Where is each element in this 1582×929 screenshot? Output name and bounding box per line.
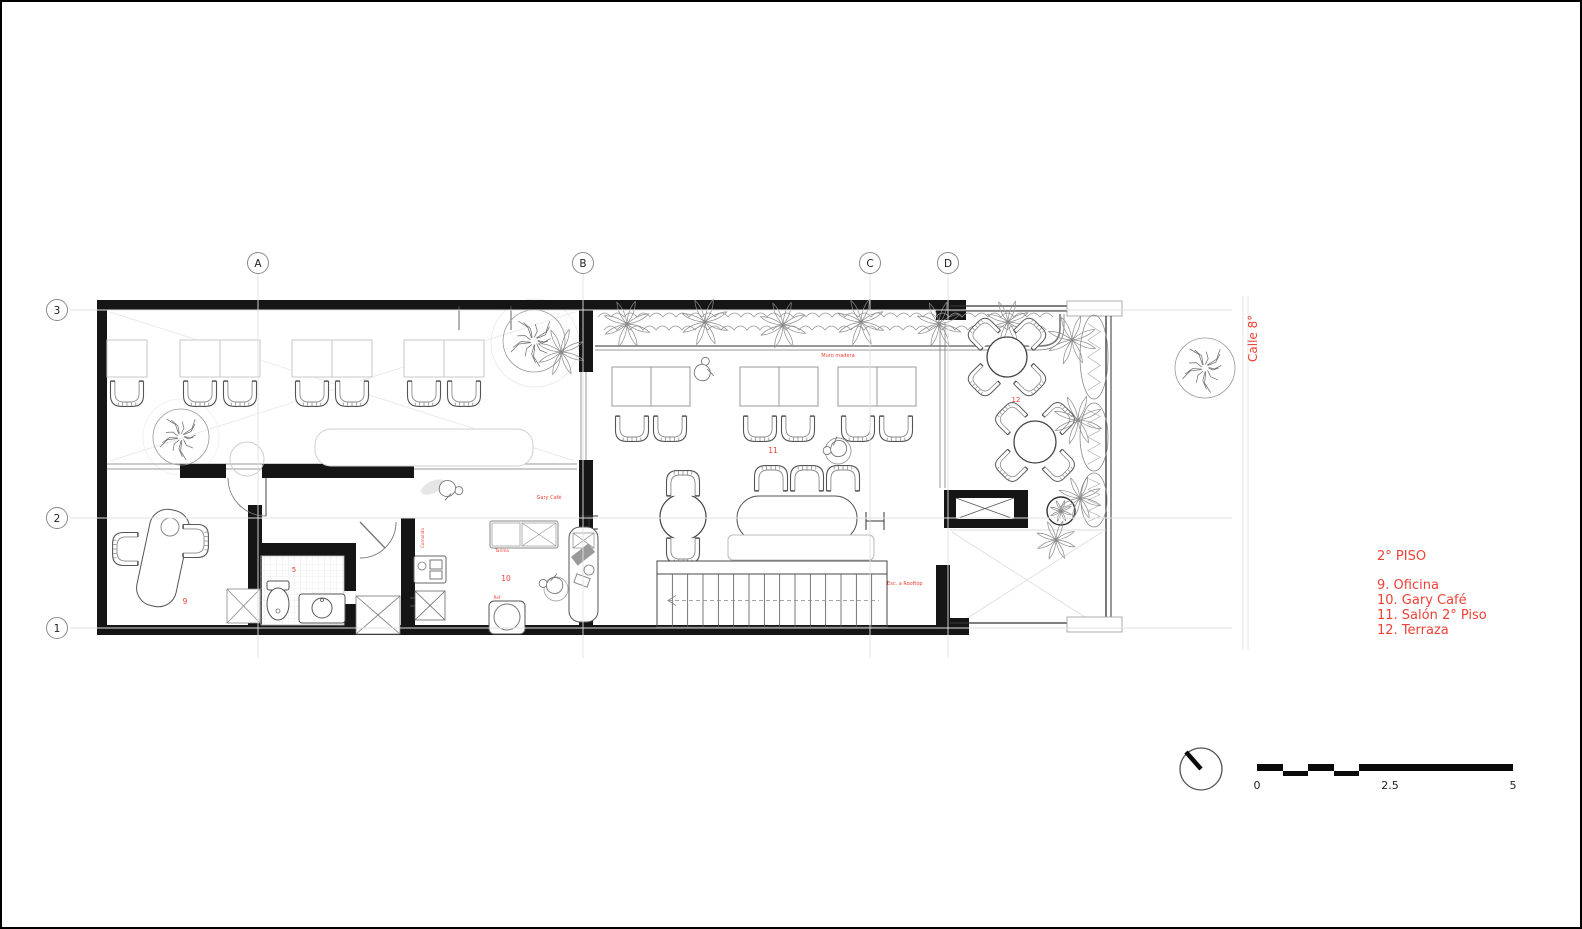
svg-text:3: 3 — [54, 305, 61, 317]
svg-text:2: 2 — [54, 513, 61, 525]
plan-rect — [612, 367, 651, 406]
person-figure — [437, 479, 464, 503]
wall — [97, 300, 107, 635]
crossed-box — [415, 591, 445, 620]
chair — [408, 381, 441, 406]
wall — [180, 464, 226, 478]
crossed-box — [227, 589, 260, 623]
chair — [616, 416, 649, 441]
tree — [153, 409, 209, 465]
plan-label: Muro madera — [821, 353, 854, 359]
crossed-box — [573, 533, 594, 548]
chair — [296, 381, 329, 406]
chair — [827, 466, 860, 491]
plan-label: 5 — [292, 566, 296, 574]
plan-rect — [737, 496, 857, 541]
floor-plan-canvas: ABCD32195101112Gary CaféMuro maderaEsc. … — [0, 0, 1582, 929]
legend-title: 2° PISO — [1377, 549, 1487, 564]
scale-label: 2.5 — [1381, 779, 1399, 792]
plan-label: Esc. a Rooftop — [887, 581, 923, 587]
legend-item-terraza: 12. Terraza — [1377, 623, 1487, 638]
plan-label: Comanda — [420, 528, 425, 548]
wall — [401, 518, 415, 635]
chair — [791, 466, 824, 491]
chair — [755, 466, 788, 491]
wall — [579, 460, 593, 530]
plan-rect — [315, 429, 533, 466]
plan-rect — [1067, 301, 1122, 316]
tree — [503, 310, 565, 372]
crossed-box — [522, 523, 556, 546]
plan-rect — [107, 340, 147, 377]
plan-label: Gary Café — [537, 494, 562, 501]
tree — [1175, 338, 1235, 398]
chair — [336, 381, 369, 406]
chair — [654, 416, 687, 441]
chair — [744, 416, 777, 441]
svg-text:B: B — [579, 258, 586, 270]
plan-rect — [740, 367, 779, 406]
legend-item-oficina: 9. Oficina — [1377, 578, 1487, 593]
plan-circle — [491, 299, 579, 387]
plan-rect — [779, 367, 818, 406]
chair — [782, 416, 815, 441]
wall — [97, 300, 950, 310]
plan-rect — [430, 571, 442, 579]
scale-label: 0 — [1254, 779, 1261, 792]
north-arrow — [1180, 748, 1222, 790]
chair — [111, 381, 144, 406]
wall — [943, 618, 969, 635]
wall — [344, 543, 356, 591]
plan-label: 11 — [768, 446, 778, 455]
floor-plan-page: ABCD32195101112Gary CaféMuro maderaEsc. … — [0, 0, 1582, 929]
plan-rect — [444, 340, 484, 377]
chair — [448, 381, 481, 406]
plan-legend: 2° PISO 9. Oficina 10. Gary Café 11. Sal… — [1377, 549, 1487, 638]
plan-rect — [651, 367, 690, 406]
legend-item-salon: 11. Salón 2° Piso — [1377, 608, 1487, 623]
scale-bar: 02.55 — [1254, 764, 1517, 792]
wall — [248, 543, 352, 556]
chair — [880, 416, 913, 441]
wall — [344, 604, 356, 635]
plan-label: Tarima — [494, 548, 509, 553]
plan-label: Calle 8° — [1246, 315, 1260, 362]
plan-ellipse — [267, 588, 289, 620]
plan-label: 9 — [183, 597, 188, 606]
plan-rect — [430, 560, 442, 569]
plan-rect — [404, 340, 444, 377]
plan-circle — [230, 442, 264, 476]
plan-rect — [180, 340, 220, 377]
svg-text:A: A — [254, 258, 262, 270]
plan-rect — [728, 535, 874, 560]
svg-text:1: 1 — [54, 623, 61, 635]
chair — [113, 533, 138, 566]
plan-rect — [1067, 617, 1122, 632]
palm-plant — [538, 329, 583, 374]
wall — [579, 300, 593, 372]
legend-item-gary-cafe: 10. Gary Café — [1377, 593, 1487, 608]
svg-text:D: D — [944, 258, 952, 270]
plan-label: Ref — [494, 595, 501, 600]
person-figure — [692, 355, 717, 383]
plan-rect — [332, 340, 372, 377]
svg-text:C: C — [866, 258, 873, 270]
chair — [183, 525, 208, 558]
staircase — [657, 561, 887, 627]
plan-rect — [877, 367, 916, 406]
chair — [667, 538, 700, 563]
plan-line — [360, 522, 385, 548]
plan-rect — [492, 523, 520, 546]
chair — [667, 471, 700, 496]
plan-circle — [660, 494, 706, 540]
plan-drawing — [97, 296, 1248, 650]
plan-label: 12 — [1012, 396, 1021, 404]
plan-rect — [292, 340, 332, 377]
plan-rect — [838, 367, 877, 406]
plan-rect — [220, 340, 260, 377]
plan-label: 10 — [501, 574, 511, 583]
person-figure — [538, 571, 565, 595]
chair — [184, 381, 217, 406]
scale-label: 5 — [1510, 779, 1517, 792]
chair — [224, 381, 257, 406]
